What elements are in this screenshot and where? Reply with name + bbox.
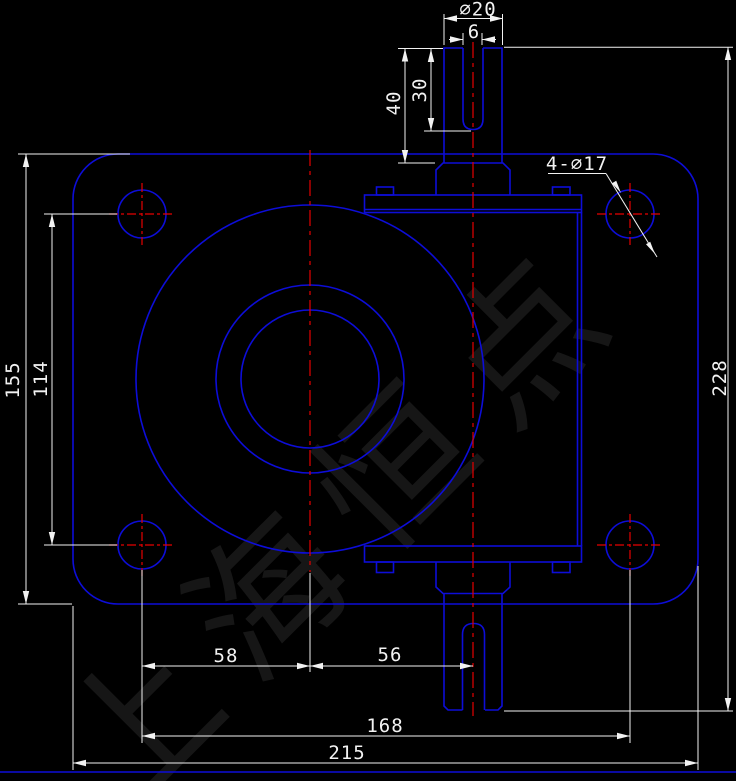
worm-wheel-housing-circle	[136, 205, 484, 553]
dim-overall-height: 228	[709, 359, 731, 396]
bolt-hole-centerlines	[109, 183, 663, 576]
top-left-lug	[377, 187, 394, 195]
dim-bolt-hole-callout: 4-⌀17	[546, 153, 608, 175]
dimension-texts: ⌀20 6 40 30 4-⌀17 155 114 228 58 56 168 …	[2, 0, 731, 764]
dim-hole-to-center: 58	[214, 645, 239, 667]
dim-shaft-length: 40	[383, 91, 405, 116]
dim-bolt-horizontal-spacing: 168	[366, 715, 403, 737]
dim-flange-width: 215	[328, 742, 365, 764]
geometry-layer	[0, 48, 736, 772]
cad-canvas: 上海恒点	[0, 0, 736, 781]
centerline-layer	[109, 42, 663, 716]
top-right-lug	[553, 187, 571, 195]
dim-shaft-diameter: ⌀20	[459, 0, 496, 21]
dimension-layer: ⌀20 6 40 30 4-⌀17 155 114 228 58 56 168 …	[2, 0, 733, 770]
dim-keyway-length: 30	[409, 78, 431, 103]
extension-lines	[18, 14, 733, 770]
engineering-drawing: ⌀20 6 40 30 4-⌀17 155 114 228 58 56 168 …	[0, 0, 736, 781]
dim-flange-height: 155	[2, 361, 24, 398]
bottom-left-lug	[377, 562, 394, 573]
bottom-right-lug	[553, 562, 571, 573]
dim-center-to-shaft: 56	[378, 644, 403, 666]
dim-bolt-vertical-spacing: 114	[30, 360, 52, 397]
dim-keyway-width: 6	[468, 21, 480, 43]
